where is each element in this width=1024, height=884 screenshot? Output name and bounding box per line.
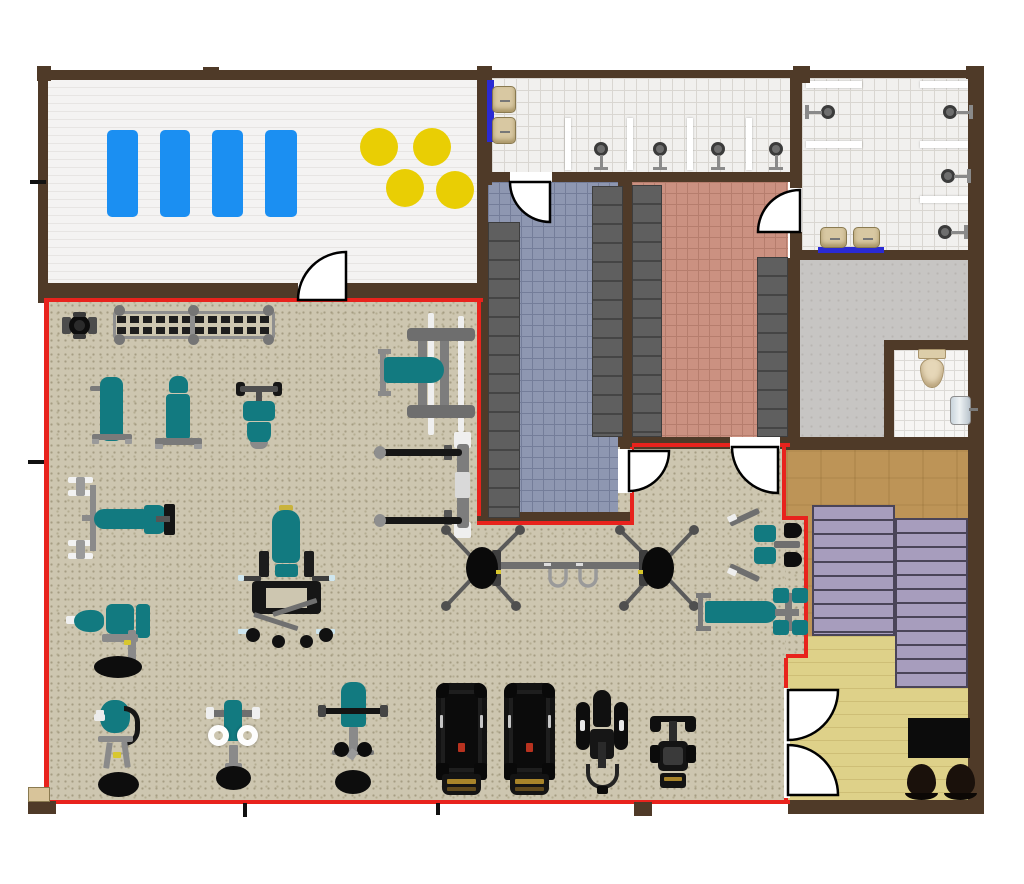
elliptical-trainer-part xyxy=(580,720,585,731)
treadmill-2-part xyxy=(513,694,546,768)
bath-sink-handle xyxy=(969,408,978,411)
shower-part xyxy=(805,105,809,119)
barbell-rack-part xyxy=(374,446,386,459)
treadmill-2-part xyxy=(515,787,544,791)
squat-machine-part xyxy=(300,635,313,648)
yoga-mat-2[interactable] xyxy=(160,130,190,217)
flat-bench-part xyxy=(773,620,789,635)
shower-part xyxy=(964,225,968,239)
chair-back xyxy=(944,786,977,800)
treadmill-1-part xyxy=(447,779,476,784)
leg-press-machine-part xyxy=(156,516,170,522)
dumbbell-rack-part xyxy=(188,334,199,345)
wall-post-6 xyxy=(28,801,56,814)
door-gap-door-blue-to-gym xyxy=(618,449,632,493)
rear-delt-machine-part xyxy=(216,766,251,790)
elliptical-trainer-part xyxy=(597,786,608,794)
adjustable-bench-1-part xyxy=(100,377,123,441)
faucet-icon xyxy=(863,238,873,240)
shower-part xyxy=(772,145,780,153)
shower-head-left-0[interactable] xyxy=(804,102,852,136)
treadmill-2[interactable] xyxy=(504,683,555,797)
reception-desk[interactable] xyxy=(908,718,970,758)
locker-bank-2[interactable] xyxy=(592,186,623,437)
shower-head-right-2[interactable] xyxy=(921,222,969,256)
shower-partition-0 xyxy=(565,118,571,170)
leg-curl-machine-part xyxy=(94,656,142,678)
faucet-icon xyxy=(830,238,840,240)
dumbbell-rack-part xyxy=(188,305,199,316)
bench-press-station[interactable] xyxy=(378,313,478,435)
treadmill-2-part xyxy=(548,715,551,728)
squat-machine-part xyxy=(238,575,244,581)
sink-3[interactable] xyxy=(820,227,847,248)
seated-curl-machine[interactable] xyxy=(318,682,388,795)
exercise-bike-part xyxy=(650,716,661,732)
leg-curl-machine-part xyxy=(74,610,104,632)
wall-post-1 xyxy=(203,67,219,80)
faucet-icon xyxy=(500,131,510,133)
seated-curl-machine-part xyxy=(380,705,388,717)
treadmill-1[interactable] xyxy=(436,683,487,797)
shower-partition-h-0 xyxy=(806,81,862,88)
flat-bench-part xyxy=(698,594,703,630)
shower-part xyxy=(941,228,949,236)
shower-partition-h-1 xyxy=(920,81,968,88)
lat-pulldown-machine-part xyxy=(103,742,113,769)
sink-2[interactable] xyxy=(492,117,516,144)
treadmill-1-part xyxy=(436,683,449,698)
squat-machine-part xyxy=(259,551,269,577)
seated-curl-machine-part xyxy=(335,770,371,794)
treadmill-2-part xyxy=(504,683,517,698)
shower-part xyxy=(951,231,965,234)
press-station[interactable] xyxy=(62,312,97,339)
shower-head-down-2[interactable] xyxy=(694,140,742,174)
exercise-ball-3[interactable] xyxy=(386,169,424,207)
chair-back xyxy=(905,786,938,800)
flat-bench-part xyxy=(705,601,777,623)
shoulder-press-machine-part xyxy=(250,442,268,449)
flat-bench-part xyxy=(696,593,711,598)
elliptical-trainer-part xyxy=(593,690,611,727)
squat-machine-part xyxy=(275,564,298,577)
adjustable-bench-1[interactable] xyxy=(90,377,134,447)
exercise-bike-part xyxy=(664,777,682,781)
leg-curl-machine-part xyxy=(136,604,150,638)
locker-bank-3[interactable] xyxy=(632,185,662,437)
leg-press-machine-part xyxy=(94,509,146,529)
exercise-bike-part xyxy=(663,747,683,765)
sauna-bench-tier-1[interactable] xyxy=(812,505,895,636)
press-station-part xyxy=(74,320,85,331)
dumbbell-rack[interactable] xyxy=(113,305,275,345)
shower-part xyxy=(946,108,954,116)
adjustable-bench-2-part xyxy=(166,394,190,440)
exercise-bike-part xyxy=(650,745,660,763)
shower-head-down-0[interactable] xyxy=(577,140,625,174)
treadmill-1-part xyxy=(445,694,478,768)
leg-curl-machine[interactable] xyxy=(66,600,158,678)
seated-curl-machine-part xyxy=(318,708,388,714)
adjustable-bench-1-part xyxy=(125,439,132,444)
squat-machine-part xyxy=(329,575,335,581)
treadmill-1-part xyxy=(480,715,483,728)
wall-12 xyxy=(788,258,800,450)
gym-outline-red-0 xyxy=(46,298,483,302)
adjustable-bench-2-part xyxy=(194,444,202,449)
leg-curl-machine-part xyxy=(124,640,131,645)
wall-tick-3 xyxy=(436,803,440,815)
exercise-ball-2[interactable] xyxy=(413,128,451,166)
door-gap-door-locker-salmon-shower xyxy=(790,188,802,232)
lat-pulldown-machine-part xyxy=(94,714,105,721)
rear-delt-machine[interactable] xyxy=(206,700,260,792)
leg-press-machine-part xyxy=(76,477,85,496)
squat-machine-part xyxy=(246,628,260,642)
exercise-ball-4[interactable] xyxy=(436,171,474,209)
lat-pulldown-machine-part xyxy=(121,741,131,768)
pec-deck-machine-part xyxy=(774,541,800,548)
adjustable-bench-2[interactable] xyxy=(155,376,202,450)
locker-bank-4[interactable] xyxy=(757,257,788,437)
press-station-part xyxy=(73,312,86,317)
shower-part xyxy=(653,167,667,170)
flat-bench-part xyxy=(792,620,808,635)
flat-bench-part xyxy=(696,626,711,631)
dumbbell-rack-part xyxy=(114,305,125,316)
wall-tick-0 xyxy=(30,180,46,184)
exercise-bike-part xyxy=(669,721,677,743)
adjustable-bench-1-part xyxy=(92,439,99,444)
adjustable-bench-2-part xyxy=(155,444,163,449)
door-gap-door-locker-blue xyxy=(510,172,552,182)
door-gap-door-studio xyxy=(298,283,346,300)
squat-machine-part xyxy=(319,628,333,642)
bath-sink[interactable] xyxy=(950,396,971,425)
treadmill-1-part xyxy=(447,787,476,791)
elliptical-trainer-part xyxy=(619,720,624,731)
pec-deck-machine[interactable] xyxy=(728,517,804,573)
dumbbell-rack-part xyxy=(114,334,125,345)
pec-deck-machine-part xyxy=(754,547,776,564)
sink-4[interactable] xyxy=(853,227,880,248)
wall-16 xyxy=(786,437,968,450)
press-station-part xyxy=(73,334,86,339)
treadmill-1-part xyxy=(458,743,465,752)
wall-15 xyxy=(884,340,894,449)
shower-head-down-3[interactable] xyxy=(752,140,800,174)
pec-deck-machine-part xyxy=(784,552,802,567)
squat-machine-part xyxy=(272,510,300,563)
squat-machine-part xyxy=(272,635,285,648)
gym-outline-red-7 xyxy=(782,447,786,518)
wall-17 xyxy=(788,800,984,814)
shower-part xyxy=(808,111,822,114)
dumbbell-rack-part xyxy=(263,334,274,345)
sink-1[interactable] xyxy=(492,86,516,113)
shoulder-press-machine-part xyxy=(247,422,271,444)
treadmill-1-part xyxy=(442,774,481,795)
exercise-bike-part xyxy=(686,745,696,763)
shower-part xyxy=(969,105,973,119)
shower-part xyxy=(769,167,783,170)
wall-post-0 xyxy=(37,66,51,81)
squat-machine-part xyxy=(304,551,314,577)
treadmill-2-part xyxy=(510,774,549,795)
shower-part xyxy=(656,145,664,153)
shower-part xyxy=(594,167,608,170)
treadmill-1-part xyxy=(474,683,487,698)
lat-pulldown-machine-part xyxy=(98,736,133,742)
shower-partition-1 xyxy=(627,118,633,170)
gym-outline-red-10 xyxy=(786,654,808,658)
seated-curl-machine-part xyxy=(341,682,366,727)
wall-1 xyxy=(38,70,48,303)
flat-bench-part xyxy=(773,588,789,603)
lat-pulldown-machine-part xyxy=(96,710,104,715)
flat-bench-part xyxy=(792,588,808,603)
gym-outline-red-1 xyxy=(44,298,49,804)
shower-head-down-1[interactable] xyxy=(636,140,684,174)
seated-curl-machine-part xyxy=(318,705,326,717)
shoulder-press-machine-part xyxy=(243,401,275,421)
wall-0 xyxy=(38,70,483,80)
leg-press-machine-part xyxy=(76,540,85,559)
rear-delt-machine-part xyxy=(208,725,229,746)
squat-machine[interactable] xyxy=(238,505,335,648)
reception-chair-1[interactable] xyxy=(905,764,938,802)
barbell-rack-part xyxy=(455,472,470,498)
rear-delt-machine-part xyxy=(206,707,214,719)
treadmill-2-part xyxy=(515,779,544,784)
lat-pulldown-machine-part xyxy=(113,752,121,758)
faucet-icon xyxy=(500,100,510,102)
rear-delt-machine-part xyxy=(252,707,260,719)
bench-press-station-part xyxy=(407,405,475,418)
shower-head-right-1[interactable] xyxy=(924,166,972,200)
shower-part xyxy=(824,108,832,116)
shower-part xyxy=(711,167,725,170)
treadmill-2-part xyxy=(508,715,511,728)
reception-chair-2[interactable] xyxy=(944,764,977,802)
wall-post-4 xyxy=(966,66,984,79)
exercise-bike[interactable] xyxy=(650,716,696,790)
wall-tick-2 xyxy=(243,803,247,817)
cable-crossover[interactable] xyxy=(436,522,704,614)
lat-pulldown-machine-part xyxy=(98,772,139,797)
pec-deck-machine-part xyxy=(754,525,776,542)
yoga-mat-3[interactable] xyxy=(212,130,243,217)
flat-bench[interactable] xyxy=(696,588,806,636)
sauna-bench-tier-2[interactable] xyxy=(895,518,968,688)
exercise-ball-1[interactable] xyxy=(360,128,398,166)
door-gap-door-salmon-to-gym xyxy=(730,437,780,449)
wall-tick-1 xyxy=(28,460,44,464)
door-gap-double-door-reception-a xyxy=(784,688,790,798)
lat-pulldown-machine[interactable] xyxy=(92,700,144,798)
treadmill-1-part xyxy=(440,715,443,728)
adjustable-bench-2-part xyxy=(169,376,188,393)
shower-part xyxy=(954,175,968,178)
wall-post-3 xyxy=(793,66,810,83)
pec-deck-machine-part xyxy=(784,523,802,538)
shower-partition-2 xyxy=(687,118,693,170)
treadmill-2-part xyxy=(542,683,555,698)
shower-part xyxy=(714,145,722,153)
shower-head-right-0[interactable] xyxy=(926,102,974,136)
shower-partition-h-2 xyxy=(806,141,862,148)
barbell-rack-part xyxy=(374,449,462,456)
bench-press-station-part xyxy=(384,357,444,383)
shower-part xyxy=(967,169,971,183)
leg-press-machine[interactable] xyxy=(68,477,184,559)
wall-post-5 xyxy=(634,802,652,816)
cable-crossover-graphic xyxy=(436,522,704,614)
treadmill-2-part xyxy=(526,743,533,752)
locker-bank-1[interactable] xyxy=(488,222,520,518)
seated-curl-machine-part xyxy=(357,742,372,757)
barbell-rack-part xyxy=(374,514,386,527)
shoulder-press-machine[interactable] xyxy=(236,380,282,450)
yoga-mat-4[interactable] xyxy=(265,130,297,217)
dumbbell-rack-part xyxy=(263,305,274,316)
wall-post-2 xyxy=(477,66,492,80)
elliptical-trainer[interactable] xyxy=(576,690,628,794)
wall-post-light-0 xyxy=(28,787,50,802)
bench-press-station-part xyxy=(407,328,475,341)
shower-part xyxy=(597,145,605,153)
shower-part xyxy=(944,172,952,180)
rear-delt-machine-part xyxy=(237,725,258,746)
exercise-bike-part xyxy=(685,716,696,732)
floor-plan-canvas xyxy=(0,0,1024,884)
shower-part xyxy=(956,111,970,114)
wall-4 xyxy=(483,70,984,78)
shower-partition-h-3 xyxy=(920,141,968,148)
yoga-mat-1[interactable] xyxy=(107,130,138,217)
gym-outline-red-2 xyxy=(44,800,790,804)
